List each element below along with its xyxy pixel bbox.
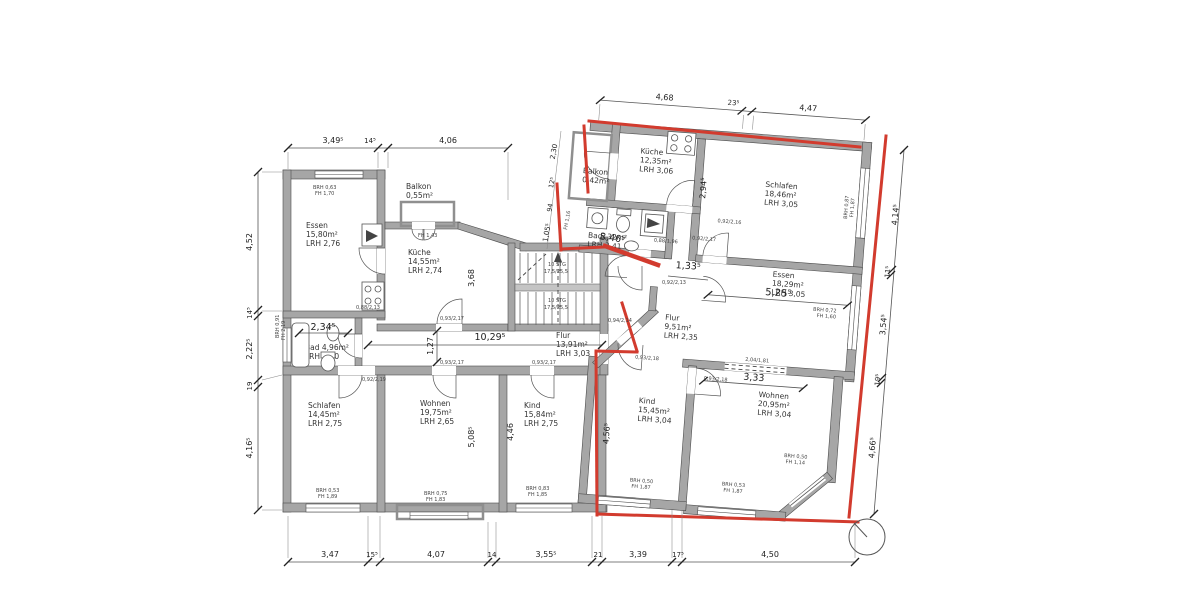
door-label-d10: 0,93/2,18 (635, 355, 659, 363)
svg-text:LRH 3,05: LRH 3,05 (764, 198, 799, 210)
dim-top-right-2: 23⁵ (727, 99, 739, 108)
svg-text:LRH 2,75: LRH 2,75 (308, 419, 342, 428)
stairs-label-3: 10 STG (548, 298, 566, 304)
dim-top-left-1: 3,49⁵ (322, 136, 343, 145)
door-label-d8: 0,92/2,16 (717, 218, 741, 226)
svg-text:FH 1,60: FH 1,60 (816, 313, 836, 320)
dim-right-4: 19⁵ (874, 373, 883, 386)
svg-text:LRH 3,06: LRH 3,06 (639, 164, 674, 176)
svg-text:0,55m²: 0,55m² (406, 191, 433, 200)
room-kind-left: Kind (524, 401, 541, 410)
dim-left-5: 4,16⁵ (245, 437, 254, 458)
dim-left-1: 4,52 (245, 233, 254, 251)
dimension-chain-right: 4,14⁵ 11⁵ 3,54⁵ 19⁵ 4,66⁵ (867, 146, 908, 518)
door-label-d2: 0,93/2,17 (440, 360, 464, 366)
svg-text:15,84m²: 15,84m² (524, 410, 556, 419)
dim-bottom-6: 21 (594, 551, 603, 559)
room-schlafen-left: Schlafen (308, 401, 341, 410)
door-label-d3: 0,93/2,17 (532, 360, 556, 366)
room-bad-left: Bad 4,96m² (305, 343, 349, 352)
dim-right-1: 4,14⁵ (890, 204, 901, 226)
dim-right-2: 11⁵ (884, 265, 893, 278)
dim-left-3: 2,22⁵ (245, 338, 254, 359)
dim-wall-opening: 2,04/1,81 (745, 357, 769, 365)
svg-text:LRH 2,35: LRH 2,35 (663, 331, 698, 343)
dim-kind-height: 4,46 (506, 423, 515, 441)
dim-entry-e3: 94 (545, 203, 554, 213)
stove-icon (666, 131, 696, 155)
svg-text:19,75m²: 19,75m² (420, 408, 452, 417)
stairs-label-1: 10 STG (548, 262, 566, 268)
svg-text:14,45m²: 14,45m² (308, 410, 340, 419)
dim-entry-e4: 1,05⁵ (541, 223, 552, 243)
dim-top-right-1: 4,68 (655, 92, 673, 102)
dim-bottom-9: 4,50 (761, 550, 779, 559)
door-label-d1: 0,92/2,19 (362, 377, 386, 383)
right-apartment: Balkon 0,42m² Küche 12,35m² LRH 3,06 Bad… (546, 86, 875, 525)
svg-text:LRH 2,74: LRH 2,74 (408, 266, 442, 275)
dim-corridor: 10,29⁵ (474, 332, 505, 343)
floor-plan-canvas: 10 STG 17,5/25,5 10 STG 17,5/25,5 (0, 0, 1200, 600)
room-kueche-left: Küche (408, 248, 431, 257)
svg-text:FH 1,70: FH 1,70 (315, 191, 334, 197)
svg-text:14,55m²: 14,55m² (408, 257, 440, 266)
stairs-label-2: 17,5/25,5 (544, 269, 568, 275)
room-wohnen-left: Wohnen (420, 399, 451, 408)
svg-text:LRH 2,76: LRH 2,76 (306, 239, 340, 248)
svg-text:13,91m²: 13,91m² (556, 340, 588, 349)
dim-left-2: 14⁵ (246, 307, 254, 319)
stairs-label-4: 17,5/25,5 (544, 305, 568, 311)
dim-bottom-3: 4,07 (427, 550, 445, 559)
floor-plan-drawing: 10 STG 17,5/25,5 10 STG 17,5/25,5 (0, 0, 1200, 600)
dim-essen-right-width: 5,25⁵ (765, 287, 792, 300)
dim-wohnen-height: 5,08⁵ (467, 426, 476, 447)
svg-text:FH 1,87: FH 1,87 (723, 487, 743, 494)
svg-text:FH 1,85: FH 1,85 (528, 492, 547, 498)
dim-bottom-4: 14 (488, 551, 497, 559)
room-balkon-left: Balkon (406, 182, 431, 191)
north-symbol (849, 519, 885, 555)
svg-text:15,80m²: 15,80m² (306, 230, 338, 239)
svg-text:FH 1,89: FH 1,89 (318, 494, 337, 500)
door-label-d4: 0,93/2,17 (440, 316, 464, 322)
dim-wohnen-right-width: 3,33 (743, 372, 765, 385)
room-essen-left: Essen (306, 221, 328, 230)
svg-text:LRH 3,04: LRH 3,04 (757, 408, 792, 420)
dim-bottom-8: 17⁵ (672, 551, 684, 559)
svg-text:LRH 2,75: LRH 2,75 (524, 419, 558, 428)
dim-top-right-3: 4,47 (799, 103, 817, 113)
svg-text:LRH 2,65: LRH 2,65 (420, 417, 454, 426)
door-label-d7: 0,92/2,13 (662, 280, 686, 286)
dim-entry2: 1,33⁵ (675, 260, 701, 273)
svg-text:LRH 3,04: LRH 3,04 (637, 414, 672, 426)
door-label-d11: 0,93/2,18 (703, 376, 727, 384)
dim-right-5: 4,66⁵ (867, 437, 878, 459)
window-label-balkon-left: FH 1,43 (418, 233, 437, 239)
dim-top-left-2: 14⁵ (364, 137, 376, 145)
svg-text:FH 1,87: FH 1,87 (631, 484, 651, 491)
door-label-d12: 0,88/1,96 (654, 238, 678, 246)
dim-kitchen-height: 3,68 (467, 269, 476, 287)
svg-text:FH 1,83: FH 1,83 (426, 497, 445, 503)
dim-bad-width: 2,34⁵ (311, 322, 336, 333)
dimension-chain-left: 4,52 14⁵ 2,22⁵ 19 4,16⁵ (245, 168, 282, 514)
dim-top-left-3: 4,06 (439, 136, 457, 145)
dim-right-3: 3,54⁵ (878, 314, 889, 336)
door-label-d5: 0,88/2,13 (356, 305, 380, 311)
dim-bottom-2: 15⁵ (366, 551, 378, 559)
window-label-balkon-right: FH 1,16 (563, 210, 572, 230)
door-label-d6: 0,94/2,14 (608, 318, 632, 324)
dim-bottom-1: 3,47 (321, 550, 339, 559)
dim-bottom-5: 3,55⁵ (535, 550, 556, 559)
svg-text:LRH 3,03: LRH 3,03 (556, 349, 590, 358)
dim-kind-right-height: 4,56⁵ (601, 423, 612, 445)
dim-left-4: 19 (246, 382, 254, 391)
svg-text:FH 2,19: FH 2,19 (281, 321, 287, 340)
svg-text:FH 1,87: FH 1,87 (849, 198, 856, 218)
room-flur-left: Flur (556, 331, 571, 340)
dim-entry-e2: 12⁵ (547, 176, 557, 188)
dim-kueche-right-height: 2,94⁵ (698, 177, 709, 199)
svg-text:FH 1,14: FH 1,14 (785, 459, 805, 466)
dim-bad-height: 1,27 (426, 337, 435, 355)
staircase: 10 STG 17,5/25,5 10 STG 17,5/25,5 (515, 252, 600, 325)
dim-bottom-7: 3,39 (629, 550, 647, 559)
